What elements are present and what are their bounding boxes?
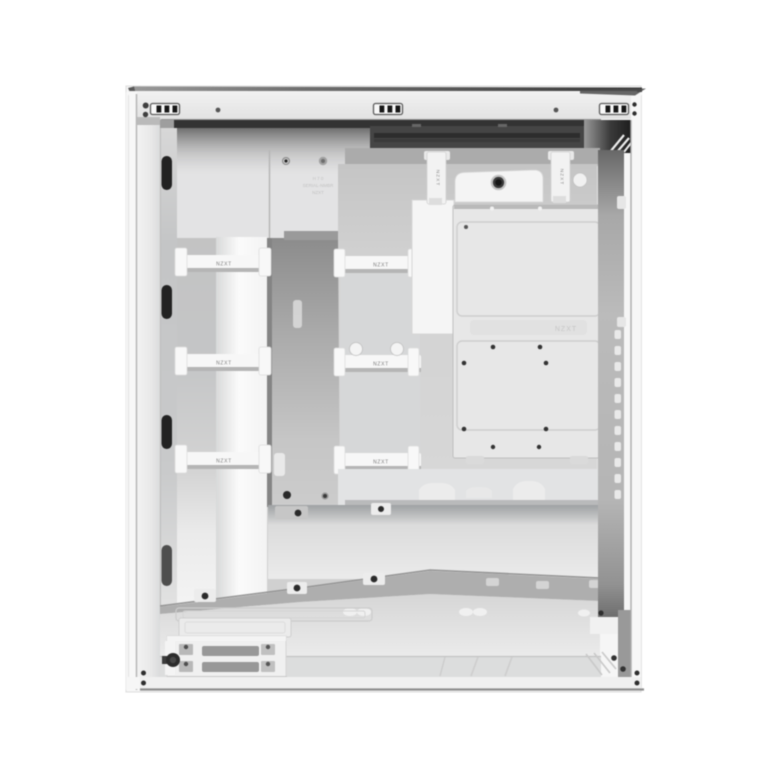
svg-text:NZXT: NZXT [555,326,577,333]
svg-text:NZXT: NZXT [373,460,389,466]
svg-text:H 7 0: H 7 0 [313,176,324,181]
svg-text:NZXT: NZXT [216,459,232,465]
svg-text:NZXT: NZXT [216,262,232,268]
svg-text:NZXT: NZXT [312,190,324,195]
svg-text:NZXT: NZXT [216,361,232,367]
svg-text:NZXT: NZXT [373,362,389,368]
svg-text:NZXT: NZXT [373,263,389,269]
svg-text:SERIAL-NMBR: SERIAL-NMBR [303,183,335,188]
svg-text:NZXT: NZXT [435,170,441,187]
svg-text:NZXT: NZXT [559,169,565,186]
